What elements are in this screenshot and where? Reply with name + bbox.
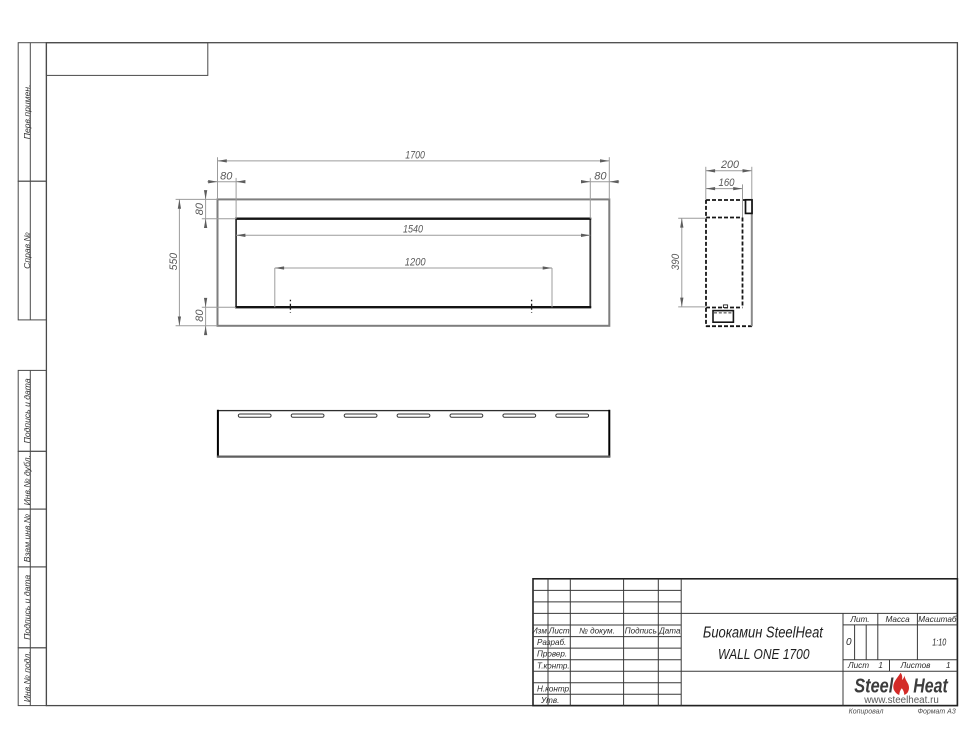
svg-text:Лит.: Лит. <box>849 615 869 624</box>
svg-text:Т.контр.: Т.контр. <box>537 661 570 670</box>
svg-text:Инв.№ подл.: Инв.№ подл. <box>22 651 32 702</box>
svg-text:1700: 1700 <box>405 149 425 161</box>
svg-text:Изм.: Изм. <box>532 627 549 636</box>
svg-text:Формат А3: Формат А3 <box>917 709 955 716</box>
svg-text:Инв.№ дубл.: Инв.№ дубл. <box>22 455 32 505</box>
svg-text:Лист: Лист <box>847 661 869 670</box>
svg-text:1: 1 <box>946 661 951 670</box>
svg-text:Утв.: Утв. <box>540 696 559 705</box>
svg-text:Биокамин SteelHeat: Биокамин SteelHeat <box>703 624 824 641</box>
svg-text:Подпись и дата: Подпись и дата <box>22 378 32 443</box>
svg-text:Лист: Лист <box>548 627 570 636</box>
svg-text:Масштаб: Масштаб <box>918 615 957 624</box>
svg-text:Разраб.: Разраб. <box>537 638 566 647</box>
svg-text:390: 390 <box>670 253 682 270</box>
svg-text:Листов: Листов <box>900 661 932 670</box>
svg-text:Steel: Steel <box>854 675 893 697</box>
svg-text:1: 1 <box>878 661 883 670</box>
svg-text:Взам.инв.№: Взам.инв.№ <box>22 514 32 562</box>
svg-text:Подпись и дата: Подпись и дата <box>22 575 32 640</box>
svg-text:Heat: Heat <box>913 675 949 697</box>
svg-text:1:10: 1:10 <box>932 636 946 648</box>
svg-text:80: 80 <box>194 309 206 322</box>
svg-text:0: 0 <box>846 637 852 648</box>
svg-text:80: 80 <box>220 170 233 182</box>
svg-text:1200: 1200 <box>405 256 427 268</box>
svg-text:Копировал: Копировал <box>849 709 884 716</box>
svg-text:550: 550 <box>168 252 180 270</box>
svg-text:Н.контр.: Н.контр. <box>537 684 571 693</box>
svg-text:Справ.№: Справ.№ <box>22 232 32 269</box>
svg-text:160: 160 <box>719 177 736 189</box>
svg-text:www.steelheat.ru: www.steelheat.ru <box>863 695 939 706</box>
svg-text:Дата: Дата <box>658 627 681 636</box>
svg-text:Подпись: Подпись <box>625 627 657 636</box>
svg-text:1540: 1540 <box>403 224 424 236</box>
svg-text:80: 80 <box>194 202 206 215</box>
svg-text:200: 200 <box>720 159 740 171</box>
svg-text:80: 80 <box>594 170 607 182</box>
svg-text:WALL ONE 1700: WALL ONE 1700 <box>718 646 810 663</box>
svg-text:Масса: Масса <box>885 615 910 624</box>
svg-text:Провер.: Провер. <box>537 650 567 659</box>
svg-text:Перв.примен.: Перв.примен. <box>22 85 32 140</box>
svg-text:№ докум.: № докум. <box>579 627 615 636</box>
